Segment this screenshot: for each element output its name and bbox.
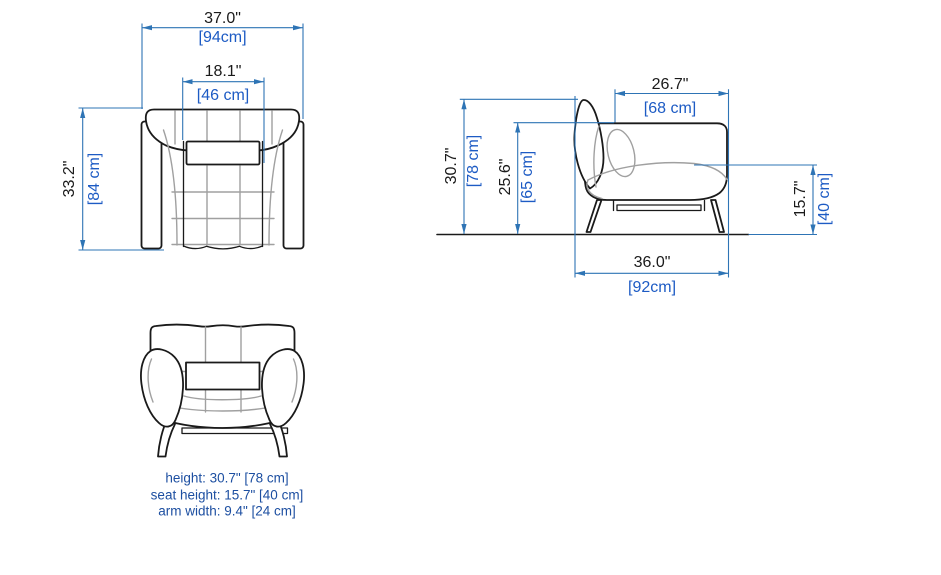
side-legs xyxy=(587,200,725,232)
side-view-drawing xyxy=(437,100,749,235)
drawing-canvas xyxy=(0,0,941,575)
dim-side-seat-depth-inches: 26.7" xyxy=(652,77,689,93)
note-seat-height: seat height: 15.7" [40 cm] xyxy=(151,488,304,502)
top-view-drawing xyxy=(142,110,304,249)
dim-top-overall-width-inches: 37.0" xyxy=(204,11,241,27)
dim-top-overall-depth-inches: 33.2" xyxy=(62,161,78,198)
dim-side-back-height-inches: 25.6" xyxy=(498,159,514,196)
dim-side-seat-height-cm: [40 cm] xyxy=(817,173,833,225)
front-seat xyxy=(162,420,288,434)
dim-top-overall-depth-cm: [84 cm] xyxy=(87,153,103,205)
note-height: height: 30.7" [78 cm] xyxy=(165,471,288,485)
front-legs xyxy=(158,420,287,457)
dim-side-seat-depth-cm: [68 cm] xyxy=(644,101,696,117)
note-arm-width: arm width: 9.4" [24 cm] xyxy=(158,504,296,518)
front-view-drawing xyxy=(141,325,304,457)
dim-side-overall-depth-inches: 36.0" xyxy=(634,255,671,271)
dim-top-headrest-width-cm: [46 cm] xyxy=(197,88,249,104)
dim-top-headrest-width-inches: 18.1" xyxy=(205,64,242,80)
dim-top-overall-width-cm: [94cm] xyxy=(198,30,246,46)
dim-side-back-height-cm: [65 cm] xyxy=(520,151,536,203)
side-body xyxy=(585,123,727,200)
dim-side-overall-depth-cm: [92cm] xyxy=(628,280,676,296)
dim-side-overall-height-cm: [78 cm] xyxy=(466,135,482,187)
dim-side-seat-height-inches: 15.7" xyxy=(793,181,809,218)
front-backrest xyxy=(151,325,295,352)
front-pillow xyxy=(186,363,260,390)
armchair-dimension-drawing: 37.0" [94cm] 18.1" [46 cm] 33.2" [84 cm]… xyxy=(0,0,941,575)
dim-side-overall-height-inches: 30.7" xyxy=(444,148,460,185)
top-headrest-pillow xyxy=(187,142,260,165)
